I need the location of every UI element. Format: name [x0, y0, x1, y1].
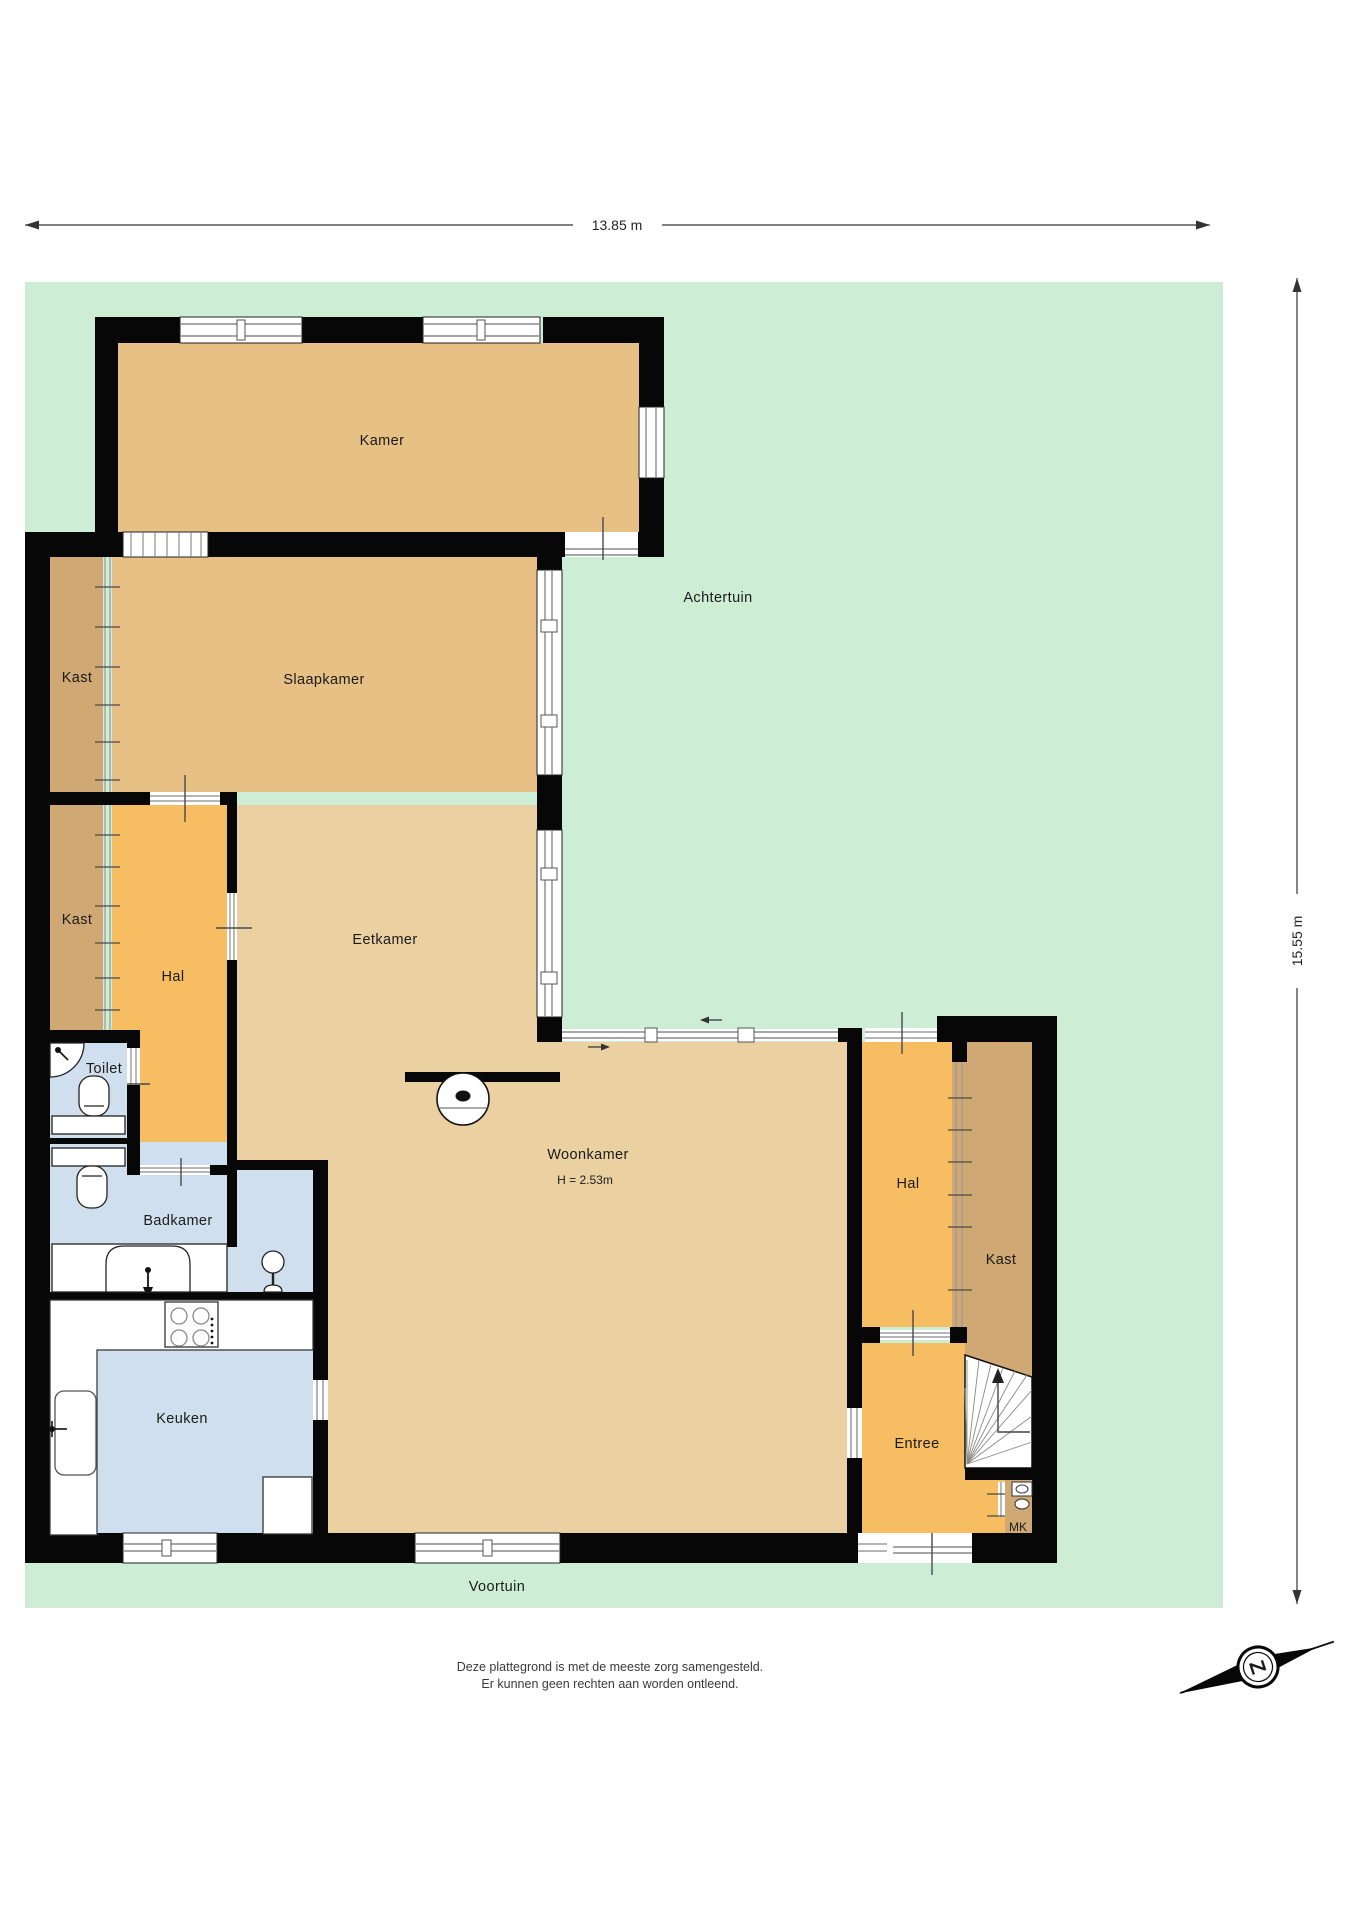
floor-plan: 13.85 m 15.55 m — [0, 0, 1358, 1920]
disclaimer-line-2: Er kunnen geen rechten aan worden ontlee… — [481, 1677, 738, 1691]
label-woonkamer-height: H = 2.53m — [557, 1173, 613, 1187]
window-kamer-east — [639, 407, 664, 478]
meters-icon — [1012, 1482, 1032, 1509]
label-kast-top: Kast — [62, 670, 93, 686]
window-keuken-woonkamer — [313, 1380, 328, 1420]
label-keuken: Keuken — [156, 1411, 208, 1427]
window-kamer-north-1 — [180, 317, 302, 343]
window-kamer-north-2 — [423, 317, 540, 343]
room-woonkamer-floor-left — [328, 1072, 405, 1533]
window-woonkamer-south — [415, 1533, 560, 1563]
room-kast-right-floor — [952, 1042, 1032, 1377]
room-hal-left-floor-upper — [112, 805, 227, 1030]
label-woonkamer: Woonkamer — [547, 1147, 629, 1163]
bathtub-icon — [52, 1244, 227, 1292]
label-voortuin: Voortuin — [469, 1579, 525, 1595]
fridge-icon — [263, 1477, 312, 1534]
room-passage-floor — [237, 1072, 328, 1160]
window-eetkamer-east — [537, 830, 562, 1017]
label-hal-left: Hal — [162, 969, 185, 985]
label-badkamer: Badkamer — [143, 1213, 212, 1229]
label-slaapkamer: Slaapkamer — [283, 672, 364, 688]
window-slaapkamer-east — [537, 570, 562, 775]
room-woonkamer-floor-right — [560, 1042, 847, 1533]
dimension-height-label: 15.55 m — [1289, 916, 1305, 967]
room-woonkamer-floor-mid — [405, 1080, 560, 1533]
label-entree: Entree — [894, 1436, 939, 1452]
label-achtertuin: Achtertuin — [683, 590, 752, 606]
window-keuken-south — [123, 1533, 217, 1563]
label-kast-left: Kast — [62, 912, 93, 928]
label-kamer: Kamer — [360, 433, 405, 449]
dimension-width-label: 13.85 m — [592, 217, 643, 233]
lamp-icon — [437, 1073, 489, 1125]
label-hal-right: Hal — [897, 1176, 920, 1192]
label-kast-right: Kast — [986, 1252, 1017, 1268]
label-mk: MK — [1009, 1520, 1027, 1534]
label-eetkamer: Eetkamer — [352, 932, 417, 948]
window-woonkamer-entree — [847, 1408, 862, 1458]
window-kamer-slaapkamer — [123, 532, 208, 557]
stove-icon — [165, 1302, 218, 1347]
label-toilet: Toilet — [86, 1061, 122, 1077]
disclaimer-line-1: Deze plattegrond is met de meeste zorg s… — [457, 1660, 763, 1674]
room-badkamer-floor-gap — [227, 1247, 237, 1292]
room-badkamer-floor-right — [237, 1170, 313, 1292]
sink-icon — [49, 1391, 96, 1475]
